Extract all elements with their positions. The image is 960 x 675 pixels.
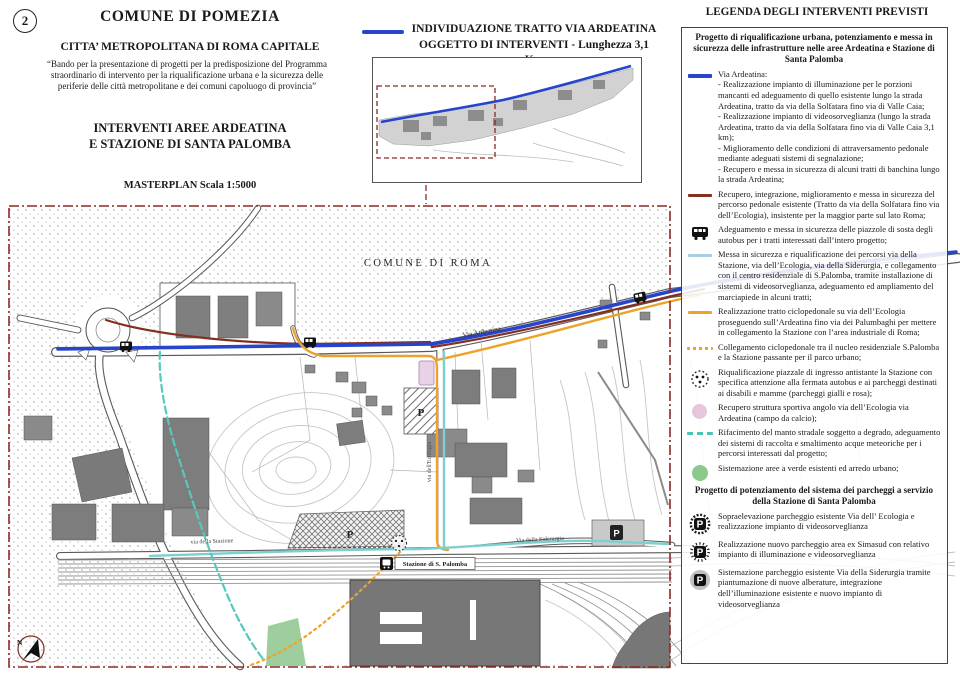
legend-item-collegamento-ciclopedonale: Collegamento ciclopedonale tra il nucleo… bbox=[686, 342, 942, 363]
dotted-circle-icon bbox=[690, 369, 710, 389]
parking-hatched-icon: P bbox=[689, 513, 711, 535]
svg-text:N: N bbox=[17, 638, 23, 647]
legend-item-sopraelevazione-parcheggio: P Sopraelevazione parcheggio esistente V… bbox=[686, 511, 942, 535]
bando-quote: “Bando per la presentazione di progetti … bbox=[36, 59, 338, 92]
legend-item-manto-stradale: Rifacimento del manto stradale soggetto … bbox=[686, 427, 942, 459]
parking-gear-icon: P bbox=[689, 541, 711, 563]
interventi-heading-line1: INTERVENTI AREE ARDEATINA bbox=[30, 120, 350, 136]
legend-sub-item: - Realizzazione impianto di videosorvegl… bbox=[718, 111, 942, 143]
legend-section2-title: Progetto di potenziamento del sistema de… bbox=[686, 485, 942, 507]
legend-item-via-ardeatina: Via Ardeatina: - Realizzazione impianto … bbox=[686, 69, 942, 185]
legend-item-text: Collegamento ciclopedonale tra il nucleo… bbox=[718, 342, 942, 363]
legend-panel: LEGENDA DEGLI INTERVENTI PREVISTI Proget… bbox=[681, 0, 957, 675]
svg-text:P: P bbox=[696, 547, 703, 558]
inset-map bbox=[372, 57, 642, 183]
legend-sub-item: - Miglioramento delle condizioni di attr… bbox=[718, 143, 942, 164]
inset-heading-line1: INDIVIDUAZIONE TRATTO VIA ARDEATINA bbox=[410, 22, 658, 38]
legend-item-text: Adeguamento e messa in sicurezza delle p… bbox=[718, 224, 942, 245]
lightblue-line-icon bbox=[688, 254, 712, 257]
legend-item-text: Realizzazione nuovo parcheggio area ex S… bbox=[718, 539, 942, 563]
legend-item-text: Realizzazione tratto ciclopedonale su vi… bbox=[718, 306, 942, 338]
parking-p-crosshatch-label: P bbox=[347, 529, 354, 541]
legend-item-ciclopedonale: Realizzazione tratto ciclopedonale su vi… bbox=[686, 306, 942, 338]
map-label-comune-roma: COMUNE DI ROMA bbox=[364, 258, 492, 269]
parking-p-hatched-label: P bbox=[418, 407, 425, 419]
masterplan-scale-label: MASTERPLAN Scala 1:5000 bbox=[30, 180, 350, 191]
darkred-line-icon bbox=[688, 194, 712, 197]
orange-line-icon bbox=[688, 311, 712, 314]
legend-item-piazzale-ingresso: Riqualificazione piazzale di ingresso an… bbox=[686, 367, 942, 399]
parking-p-badge: P bbox=[610, 525, 623, 540]
legend-item-text: Recupero struttura sportiva angolo via d… bbox=[718, 402, 942, 423]
sheet-number: 2 bbox=[22, 13, 29, 29]
legend-sub-item: - Recupero e messa in sicurezza di alcun… bbox=[718, 164, 942, 185]
page-subtitle: CITTA’ METROPOLITANA DI ROMA CAPITALE bbox=[30, 41, 350, 53]
station-label: Stazione di S. Palomba bbox=[403, 561, 468, 568]
legend-item-text: Sistemazione aree a verde esistenti ed a… bbox=[718, 463, 942, 481]
legend-item-nuovo-parcheggio: P Realizzazione nuovo parcheggio area ex… bbox=[686, 539, 942, 563]
legend-item-label: Via Ardeatina: bbox=[718, 69, 942, 80]
orange-dotted-line-icon bbox=[687, 347, 713, 350]
blue-line-icon bbox=[688, 74, 712, 78]
teal-dashed-line-icon bbox=[687, 432, 713, 435]
legend-item-text: Sistemazione parcheggio esistente Via de… bbox=[718, 567, 942, 609]
interventi-heading: INTERVENTI AREE ARDEATINA E STAZIONE DI … bbox=[30, 120, 350, 153]
svg-text:P: P bbox=[696, 519, 703, 530]
green-area-icon bbox=[692, 465, 708, 481]
legend-item-text: Messa in sicurezza e riqualificazione de… bbox=[718, 249, 942, 302]
svg-text:P: P bbox=[613, 529, 620, 540]
piazzale-dotted-circle bbox=[392, 536, 407, 551]
legend-item-piazzole-autobus: Adeguamento e messa in sicurezza delle p… bbox=[686, 224, 942, 245]
page-title: COMUNE DI POMEZIA bbox=[30, 8, 350, 26]
masterplan-sheet: { "page": { "sheet_number": "2" }, "titl… bbox=[0, 0, 960, 675]
legend-item-aree-verde: Sistemazione aree a verde esistenti ed a… bbox=[686, 463, 942, 481]
sport-field-pink bbox=[419, 361, 434, 385]
interventi-heading-line2: E STAZIONE DI SANTA PALOMBA bbox=[30, 136, 350, 152]
legend-sub-item: - Realizzazione impianto di illuminazion… bbox=[718, 79, 942, 111]
svg-text:P: P bbox=[696, 575, 703, 586]
legend-item-text: Riqualificazione piazzale di ingresso an… bbox=[718, 367, 942, 399]
parking-plain-icon: P bbox=[689, 569, 711, 591]
legend-item-struttura-sportiva: Recupero struttura sportiva angolo via d… bbox=[686, 402, 942, 423]
legend-item-text: Sopraelevazione parcheggio esistente Via… bbox=[718, 511, 942, 535]
bus-icon bbox=[691, 226, 709, 241]
inset-map-drawing bbox=[373, 58, 639, 180]
legend-item-percorsi-stazione: Messa in sicurezza e riqualificazione de… bbox=[686, 249, 942, 302]
map-label-via-ecologia: via dell'Ecologia bbox=[427, 442, 433, 483]
blue-line-icon bbox=[362, 30, 404, 34]
legend-section1-title: Progetto di riqualificazione urbana, pot… bbox=[686, 32, 942, 65]
legend-item-percorso-pedonale: Recupero, integrazione, miglioramento e … bbox=[686, 189, 942, 221]
legend-box: Progetto di riqualificazione urbana, pot… bbox=[681, 27, 948, 664]
pink-area-icon bbox=[692, 404, 707, 419]
legend-item-text: Rifacimento del manto stradale soggetto … bbox=[718, 427, 942, 459]
legend-title: LEGENDA DEGLI INTERVENTI PREVISTI bbox=[681, 6, 953, 18]
legend-item-sistemazione-parcheggio: P Sistemazione parcheggio esistente Via … bbox=[686, 567, 942, 609]
legend-item-text: Recupero, integrazione, miglioramento e … bbox=[718, 189, 942, 221]
